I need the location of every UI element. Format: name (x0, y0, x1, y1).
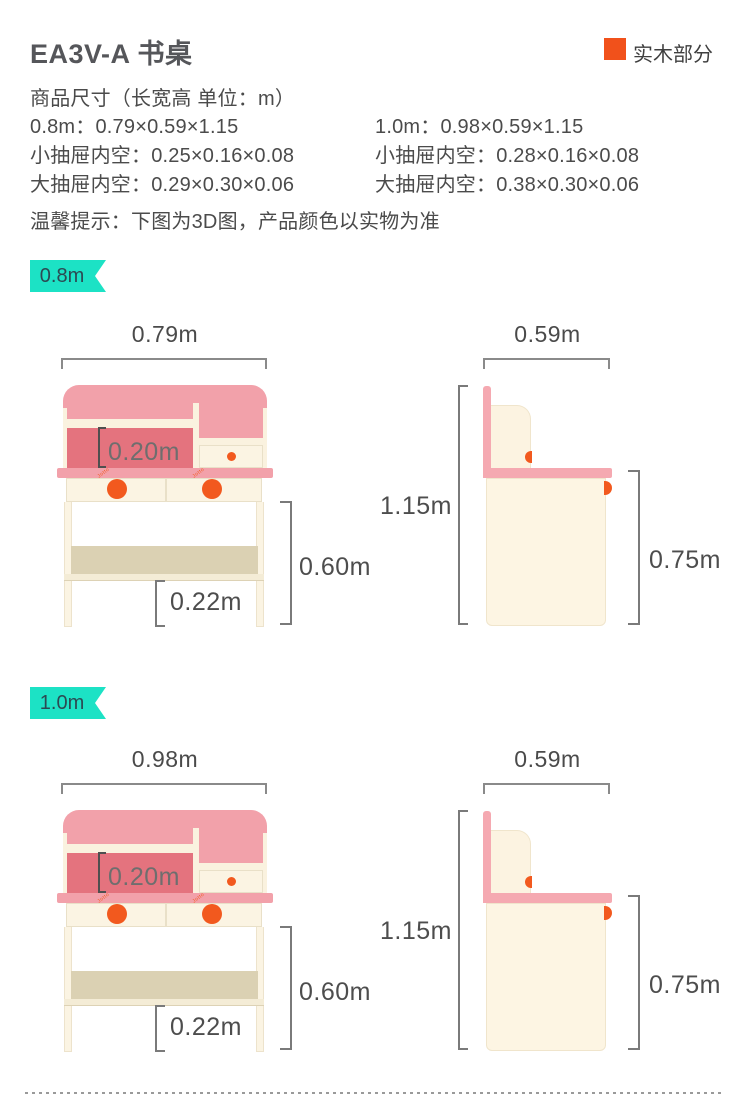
small-drawer-knob-icon (227, 877, 236, 886)
dim-desk-height-bracket (628, 470, 640, 625)
small-drawer-knob-icon (227, 452, 236, 461)
spec-big-drawer-left: 大抽屉内空：0.29×0.30×0.06 (30, 168, 294, 197)
diagram-0-8m: 0.79m 0.20m Jotto Jotto 0.60m 0.22m 0.59… (0, 315, 750, 660)
hutch-right-edge (263, 833, 267, 893)
dim-inner-height-bracket (98, 852, 106, 893)
dim-under-height-bracket (280, 926, 292, 1050)
desktop-edge (57, 468, 273, 478)
dim-inner-height-bracket (98, 427, 106, 468)
hutch-right-shelf (199, 438, 263, 445)
dim-desk-height-bracket (628, 895, 640, 1050)
dim-clearance-bracket (155, 1005, 165, 1052)
dim-inner-height-label: 0.20m (108, 438, 180, 467)
dim-total-height-label: 1.15m (380, 917, 444, 946)
side-knob-icon (604, 481, 612, 495)
spec-note: 温馨提示：下图为3D图，产品颜色以实物为准 (30, 205, 440, 234)
dim-under-height-bracket (280, 501, 292, 625)
dim-clearance-label: 0.22m (170, 588, 242, 617)
side-knob-icon (604, 906, 612, 920)
desk-back-panel (71, 546, 258, 574)
spec-heading: 商品尺寸（长宽高 单位：m） (30, 82, 295, 111)
dim-width-label: 0.98m (61, 746, 269, 773)
spec-size-left: 0.8m：0.79×0.59×1.15 (30, 110, 238, 139)
desktop-edge (57, 893, 273, 903)
page-title: EA3V-A 书桌 (30, 32, 193, 71)
dim-desk-height-label: 0.75m (649, 971, 721, 1000)
hutch-right-shelf (199, 863, 263, 870)
dim-depth-label: 0.59m (483, 321, 612, 348)
side-knob-icon (525, 451, 532, 463)
hutch-left-shelf (67, 419, 193, 428)
dim-width-bracket (61, 783, 267, 794)
dim-width-label: 0.79m (61, 321, 269, 348)
spec-small-drawer-right: 小抽屉内空：0.28×0.16×0.08 (375, 139, 639, 168)
dim-depth-bracket (483, 358, 610, 369)
drawer-knob-icon (107, 904, 127, 924)
dim-total-height-label: 1.15m (380, 492, 444, 521)
size-badge-1-0m: 1.0m (30, 687, 106, 719)
hutch-right-edge (263, 408, 267, 468)
dim-depth-label: 0.59m (483, 746, 612, 773)
dim-under-height-label: 0.60m (299, 553, 371, 582)
dotted-divider (25, 1092, 725, 1094)
side-desk-body (486, 903, 606, 1051)
drawer-knob-icon (202, 479, 222, 499)
size-badge-0-8m: 0.8m (30, 260, 106, 292)
drawer-knob-icon (202, 904, 222, 924)
spec-size-right: 1.0m：0.98×0.59×1.15 (375, 110, 583, 139)
hutch-left-shelf (67, 844, 193, 853)
side-back-strip (483, 386, 491, 478)
drawer-apron (66, 478, 262, 502)
side-knob-icon (525, 876, 532, 888)
dim-clearance-label: 0.22m (170, 1013, 242, 1042)
dim-clearance-bracket (155, 580, 165, 627)
spec-big-drawer-right: 大抽屉内空：0.38×0.30×0.06 (375, 168, 639, 197)
side-desktop-edge (483, 893, 612, 903)
desk-back-panel (71, 971, 258, 999)
dim-inner-height-label: 0.20m (108, 863, 180, 892)
drawer-divider (165, 904, 167, 926)
drawer-apron (66, 903, 262, 927)
solid-wood-legend-label: 实木部分 (633, 38, 713, 67)
spec-small-drawer-left: 小抽屉内空：0.25×0.16×0.08 (30, 139, 294, 168)
dim-total-height-bracket (458, 810, 468, 1050)
side-desktop-edge (483, 468, 612, 478)
dim-width-bracket (61, 358, 267, 369)
side-back-strip (483, 811, 491, 903)
dim-depth-bracket (483, 783, 610, 794)
diagram-1-0m: 0.98m 0.20m Jotto Jotto 0.60m 0.22m 0.59… (0, 740, 750, 1085)
drawer-divider (165, 479, 167, 501)
solid-wood-swatch-icon (604, 38, 626, 60)
drawer-knob-icon (107, 479, 127, 499)
dim-under-height-label: 0.60m (299, 978, 371, 1007)
dim-total-height-bracket (458, 385, 468, 625)
product-dimension-page: EA3V-A 书桌 实木部分 商品尺寸（长宽高 单位：m） 0.8m：0.79×… (0, 0, 750, 1114)
side-desk-body (486, 478, 606, 626)
dim-desk-height-label: 0.75m (649, 546, 721, 575)
